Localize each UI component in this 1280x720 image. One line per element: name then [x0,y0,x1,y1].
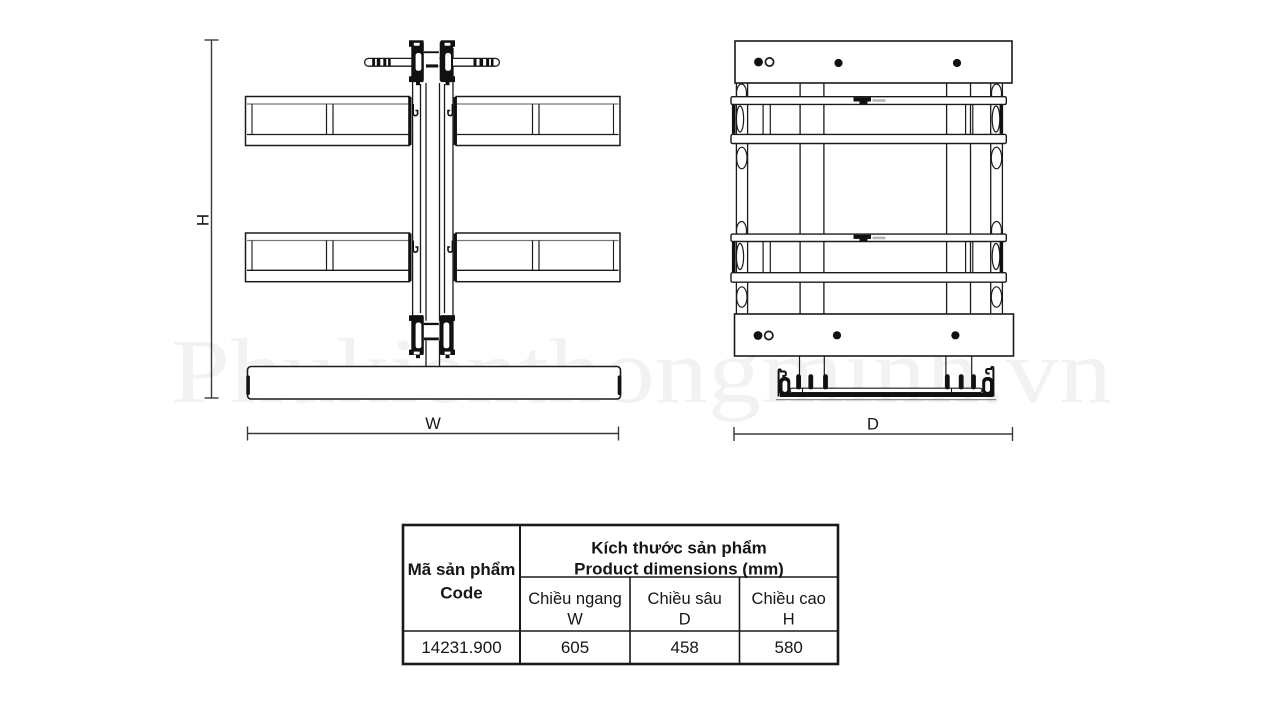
svg-text:D: D [679,611,691,629]
svg-text:Kích thước sản phẩm: Kích thước sản phẩm [591,539,767,558]
svg-text:458: 458 [671,638,699,657]
svg-text:Code: Code [440,584,483,603]
svg-text:Product dimensions (mm): Product dimensions (mm) [574,560,784,579]
svg-text:H: H [783,611,795,629]
svg-text:Chiều cao: Chiều cao [752,590,826,608]
svg-text:14231.900: 14231.900 [421,638,501,657]
svg-text:605: 605 [561,638,589,657]
svg-text:Mã sản phẩm: Mã sản phẩm [408,560,516,579]
svg-text:Chiều ngang: Chiều ngang [528,590,622,608]
svg-text:D: D [867,416,879,434]
svg-text:W: W [567,611,583,629]
svg-text:Chiều sâu: Chiều sâu [648,590,722,608]
svg-text:W: W [425,415,441,433]
svg-text:H: H [194,214,213,226]
svg-text:580: 580 [775,638,803,657]
